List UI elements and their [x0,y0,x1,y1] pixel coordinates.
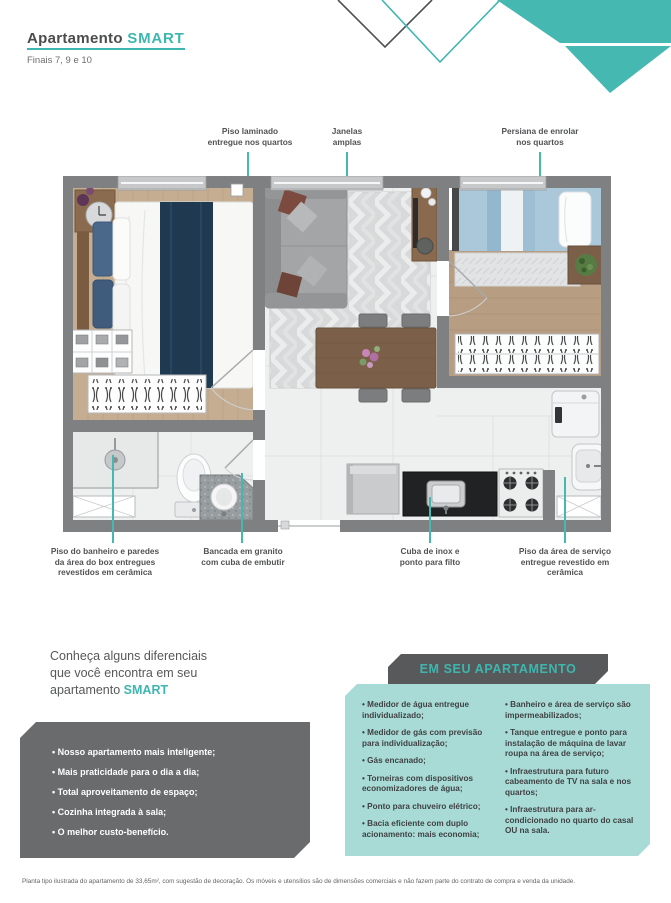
list-item: O melhor custo-benefício. [52,827,300,837]
callout-janelas-amplas: Janelas amplas [322,126,372,147]
page-title-accent: SMART [127,30,184,47]
diferenciais-box: Nosso apartamento mais inteligente; Mais… [20,722,310,858]
window-living [271,176,383,190]
bedroom2 [452,188,604,374]
list-item: Ponto para chuveiro elétrico; [362,802,497,813]
closet-hangers [88,375,206,413]
list-item: Bacia eficiente com duplo acionamento: m… [362,819,497,840]
list-item: Gás encanado; [362,756,497,767]
list-item: Medidor de gás com previsão para individ… [362,728,497,749]
bathroom-box-marker [73,496,135,517]
bed2-footboard [452,188,459,251]
fridge [347,464,399,514]
washing-machine [552,391,599,437]
bedroom1 [72,187,253,413]
sofa [265,184,347,308]
list-item: Cozinha integrada à sala; [52,807,300,817]
apartment-features-col1: Medidor de água entregue individualizado… [362,700,497,856]
stove [499,469,543,517]
callout-persiana: Persiana de enrolar nos quartos [485,126,595,147]
list-item: Infraestrutura para ar-condicionado no q… [505,805,640,837]
callout-piso-banheiro: Piso do banheiro e paredes da área do bo… [30,546,180,578]
apartment-features-col2: Banheiro e área de serviço são impermeab… [505,700,640,856]
list-item: Infraestrutura para futuro cabeamento de… [505,767,640,799]
list-item: Banheiro e área de serviço são impermeab… [505,700,640,721]
title-underline [27,48,185,50]
living-room [265,184,437,402]
entrance-door [278,520,340,532]
em-seu-apartamento-header: EM SEU APARTAMENTO [388,654,608,684]
diferenciais-intro: Conheça alguns diferenciais que você enc… [50,648,207,699]
page-title: Apartamento SMART [27,30,185,47]
plant-table [568,246,604,284]
list-item: Total aproveitamento de espaço; [52,787,300,797]
list-item: Tanque entregue e ponto para instalação … [505,728,640,760]
page-subtitle: Finais 7, 9 e 10 [27,55,92,66]
kitchen-counter-sink [403,472,497,516]
page-title-regular: Apartamento [27,30,123,47]
laundry-tank [572,444,605,490]
leader-line-banheiro [112,455,114,543]
callout-bancada: Bancada em granito com cuba de embutir [178,546,308,567]
window-bedroom2 [460,176,546,190]
granite-counter-basin [200,475,253,520]
leader-line-cuba [429,497,431,543]
tv-console [412,185,437,261]
leader-line-servico [564,477,566,543]
flyer-page: Apartamento SMART Finais 7, 9 e 10 Piso … [0,0,671,903]
em-seu-apartamento-box: Medidor de água entregue individualizado… [345,684,650,856]
corner-triangles-decoration [326,0,671,95]
intro-accent-smart: SMART [124,683,168,697]
wardrobe-shelves [72,330,132,373]
diferenciais-list: Nosso apartamento mais inteligente; Mais… [20,722,310,837]
disclaimer: Planta tipo ilustrada do apartamento de … [22,878,656,885]
closet2-hangers [455,334,599,374]
callout-cuba-inox: Cuba de inox e ponto para filto [375,546,485,567]
wall-marker [231,184,243,196]
list-item: Nosso apartamento mais inteligente; [52,747,300,757]
window-bedroom1 [118,176,206,190]
kitchen [347,464,543,517]
list-item: Torneiras com dispositivos economizadore… [362,774,497,795]
list-item: Medidor de água entregue individualizado… [362,700,497,721]
em-seu-apartamento-title: EM SEU APARTAMENTO [420,662,577,676]
single-bed [459,188,601,251]
leader-line-bancada [241,473,243,543]
callout-piso-servico: Piso da área de serviço entregue revesti… [490,546,640,578]
floorplan [63,176,611,532]
callout-piso-laminado: Piso laminado entregue nos quartos [194,126,306,147]
list-item: Mais praticidade para o dia a dia; [52,767,300,777]
